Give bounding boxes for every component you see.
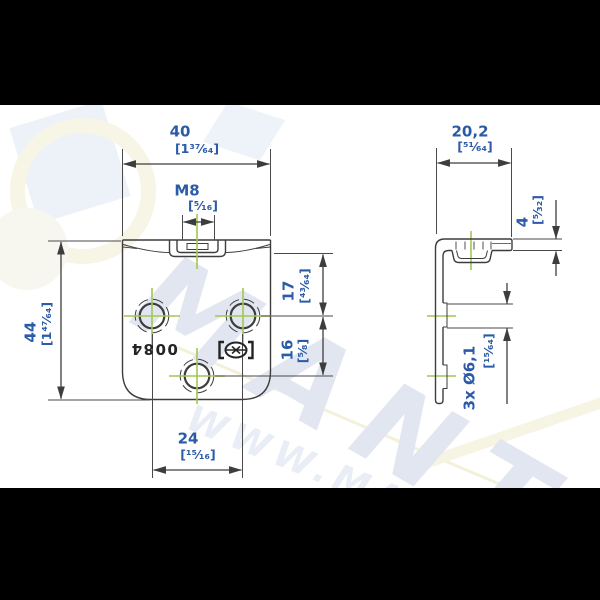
dim-44-fraction: [1⁴⁷⁄₆₄] [41, 302, 54, 346]
dim-m8-value: M8 [174, 184, 199, 199]
dim-17-fraction: [⁴³⁄₆₄] [299, 268, 312, 303]
dim-4-value: 4 [516, 217, 531, 227]
dim-20-2-fraction: [⁵¹⁄₆₄] [457, 141, 492, 154]
dim-44-value: 44 [24, 322, 39, 343]
dim-24-value: 24 [178, 432, 199, 447]
dim-m8-fraction: [⁵⁄₁₆] [188, 200, 218, 213]
dim-24-fraction: [¹⁵⁄₁₆] [180, 449, 215, 462]
letterbox-bottom [0, 488, 600, 600]
stamped-part-number: 0084 [130, 340, 178, 358]
dim-40-value: 40 [170, 125, 191, 140]
dim-holes-value: 3x Ø6,1 [463, 346, 478, 411]
dim-16-fraction: [⁵⁄₈] [297, 339, 310, 363]
dim-holes-fraction: [¹⁵⁄₆₄] [483, 333, 496, 368]
dim-4-fraction: [⁵⁄₃₂] [532, 195, 545, 225]
letterbox-top [0, 0, 600, 105]
extension-lines [48, 148, 562, 478]
dim-40-fraction: [1³⁷⁄₆₄] [175, 143, 219, 156]
technical-drawing-page: { "title": "angle bracket technical draw… [0, 0, 600, 600]
stamped-logo [220, 342, 253, 358]
dim-17-value: 17 [282, 281, 297, 302]
dim-20-2-value: 20,2 [451, 125, 488, 140]
dim-16-value: 16 [281, 340, 296, 361]
